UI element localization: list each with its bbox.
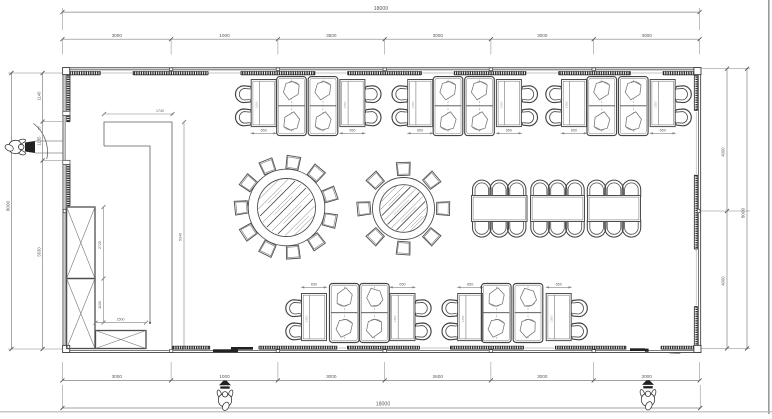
svg-text:1000: 1000 [219, 374, 230, 379]
svg-text:4000: 4000 [721, 276, 726, 286]
svg-text:1350: 1350 [343, 101, 347, 108]
svg-text:3000: 3000 [537, 374, 548, 379]
svg-text:1350: 1350 [565, 101, 569, 108]
svg-text:1140: 1140 [36, 91, 41, 101]
svg-text:1350: 1350 [393, 315, 397, 322]
svg-text:1350: 1350 [305, 315, 309, 322]
svg-text:650: 650 [467, 283, 473, 287]
svg-text:95: 95 [38, 126, 42, 130]
svg-text:650: 650 [261, 129, 267, 133]
svg-text:3000: 3000 [641, 374, 652, 379]
svg-text:5630: 5630 [36, 247, 41, 257]
svg-text:1350: 1350 [411, 101, 415, 108]
svg-text:650: 650 [399, 283, 405, 287]
svg-text:1500: 1500 [117, 318, 125, 322]
svg-text:650: 650 [417, 129, 423, 133]
svg-text:18000: 18000 [374, 6, 389, 12]
svg-text:650: 650 [506, 129, 512, 133]
svg-text:1740: 1740 [156, 109, 164, 113]
svg-text:1350: 1350 [653, 101, 657, 108]
svg-text:2600: 2600 [433, 374, 444, 379]
svg-text:2725: 2725 [98, 241, 102, 249]
svg-text:4000: 4000 [721, 147, 726, 157]
svg-text:3000: 3000 [433, 33, 444, 38]
svg-text:8000: 8000 [5, 200, 10, 211]
svg-text:650: 650 [349, 129, 355, 133]
svg-text:1000: 1000 [219, 33, 230, 38]
svg-text:1100: 1100 [98, 301, 102, 309]
svg-text:1350: 1350 [254, 101, 258, 108]
svg-text:650: 650 [660, 129, 666, 133]
svg-text:1350: 1350 [500, 101, 504, 108]
svg-text:18000: 18000 [376, 401, 391, 407]
svg-text:1350: 1350 [549, 315, 553, 322]
svg-text:8000: 8000 [741, 207, 746, 218]
svg-text:650: 650 [311, 283, 317, 287]
svg-text:650: 650 [571, 129, 577, 133]
svg-text:3000: 3000 [112, 374, 123, 379]
svg-text:3000: 3000 [537, 33, 548, 38]
svg-text:5340: 5340 [179, 233, 183, 241]
svg-text:3500: 3500 [326, 33, 337, 38]
svg-text:650: 650 [556, 283, 562, 287]
svg-text:1350: 1350 [461, 315, 465, 322]
svg-text:3000: 3000 [326, 374, 337, 379]
svg-text:3000: 3000 [641, 33, 652, 38]
svg-text:3000: 3000 [112, 33, 123, 38]
svg-text:1135: 1135 [36, 136, 41, 146]
